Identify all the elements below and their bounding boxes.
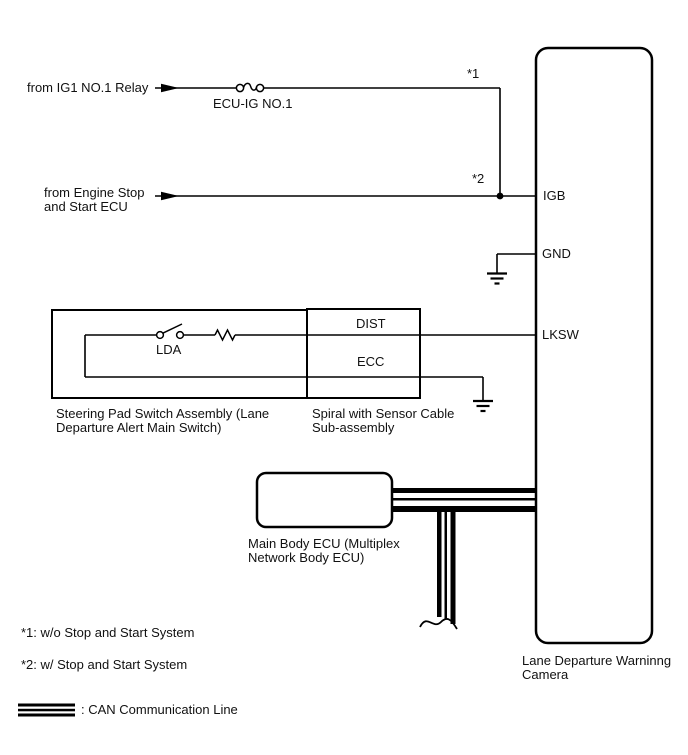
ground-symbol-ecc (473, 401, 493, 411)
label-ref2: *2 (472, 172, 484, 186)
label-spiral-cable: Spiral with Sensor Cable Sub-assembly (312, 407, 454, 435)
label-steering-assembly: Steering Pad Switch Assembly (Lane Depar… (56, 407, 269, 435)
pin-ecc: ECC (357, 355, 384, 369)
label-stop-start-source: from Engine Stop and Start ECU (44, 186, 144, 214)
main-body-ecu-box (257, 473, 392, 527)
label-lda: LDA (156, 343, 181, 357)
note-2: *2: w/ Stop and Start System (21, 658, 187, 672)
ig1-power-line (155, 84, 500, 196)
junction-dot (497, 193, 504, 200)
label-main-body-ecu: Main Body ECU (Multiplex Network Body EC… (248, 537, 400, 565)
legend-can-label: : CAN Communication Line (81, 703, 238, 717)
pin-lksw: LKSW (542, 328, 579, 342)
pin-gnd: GND (542, 247, 571, 261)
can-line-horizontal (392, 488, 536, 512)
resistor-symbol (215, 330, 235, 340)
diagram-linework (0, 0, 688, 755)
label-ref1: *1 (467, 67, 479, 81)
pin-igb: IGB (543, 189, 565, 203)
ecc-wire (85, 377, 483, 400)
label-camera: Lane Departure Warninng Camera (522, 654, 671, 682)
label-fuse: ECU-IG NO.1 (213, 97, 292, 111)
gnd-line (497, 254, 536, 273)
stop-start-power-line (155, 192, 536, 200)
can-line-vertical (437, 512, 456, 624)
arrowhead-ig1 (161, 84, 179, 92)
camera-box (536, 48, 652, 643)
can-legend-swatch (18, 704, 75, 717)
lksw-wire (85, 335, 536, 377)
ground-symbol-camera (487, 274, 507, 284)
note-1: *1: w/o Stop and Start System (21, 626, 194, 640)
pin-dist: DIST (356, 317, 386, 331)
switch-symbol-lda (157, 324, 184, 338)
arrowhead-stop-start (161, 192, 179, 200)
wiring-diagram: from IG1 NO.1 Relay ECU-IG NO.1 *1 from … (0, 0, 688, 755)
fuse-symbol (236, 83, 263, 91)
label-ig1-source: from IG1 NO.1 Relay (27, 81, 148, 95)
